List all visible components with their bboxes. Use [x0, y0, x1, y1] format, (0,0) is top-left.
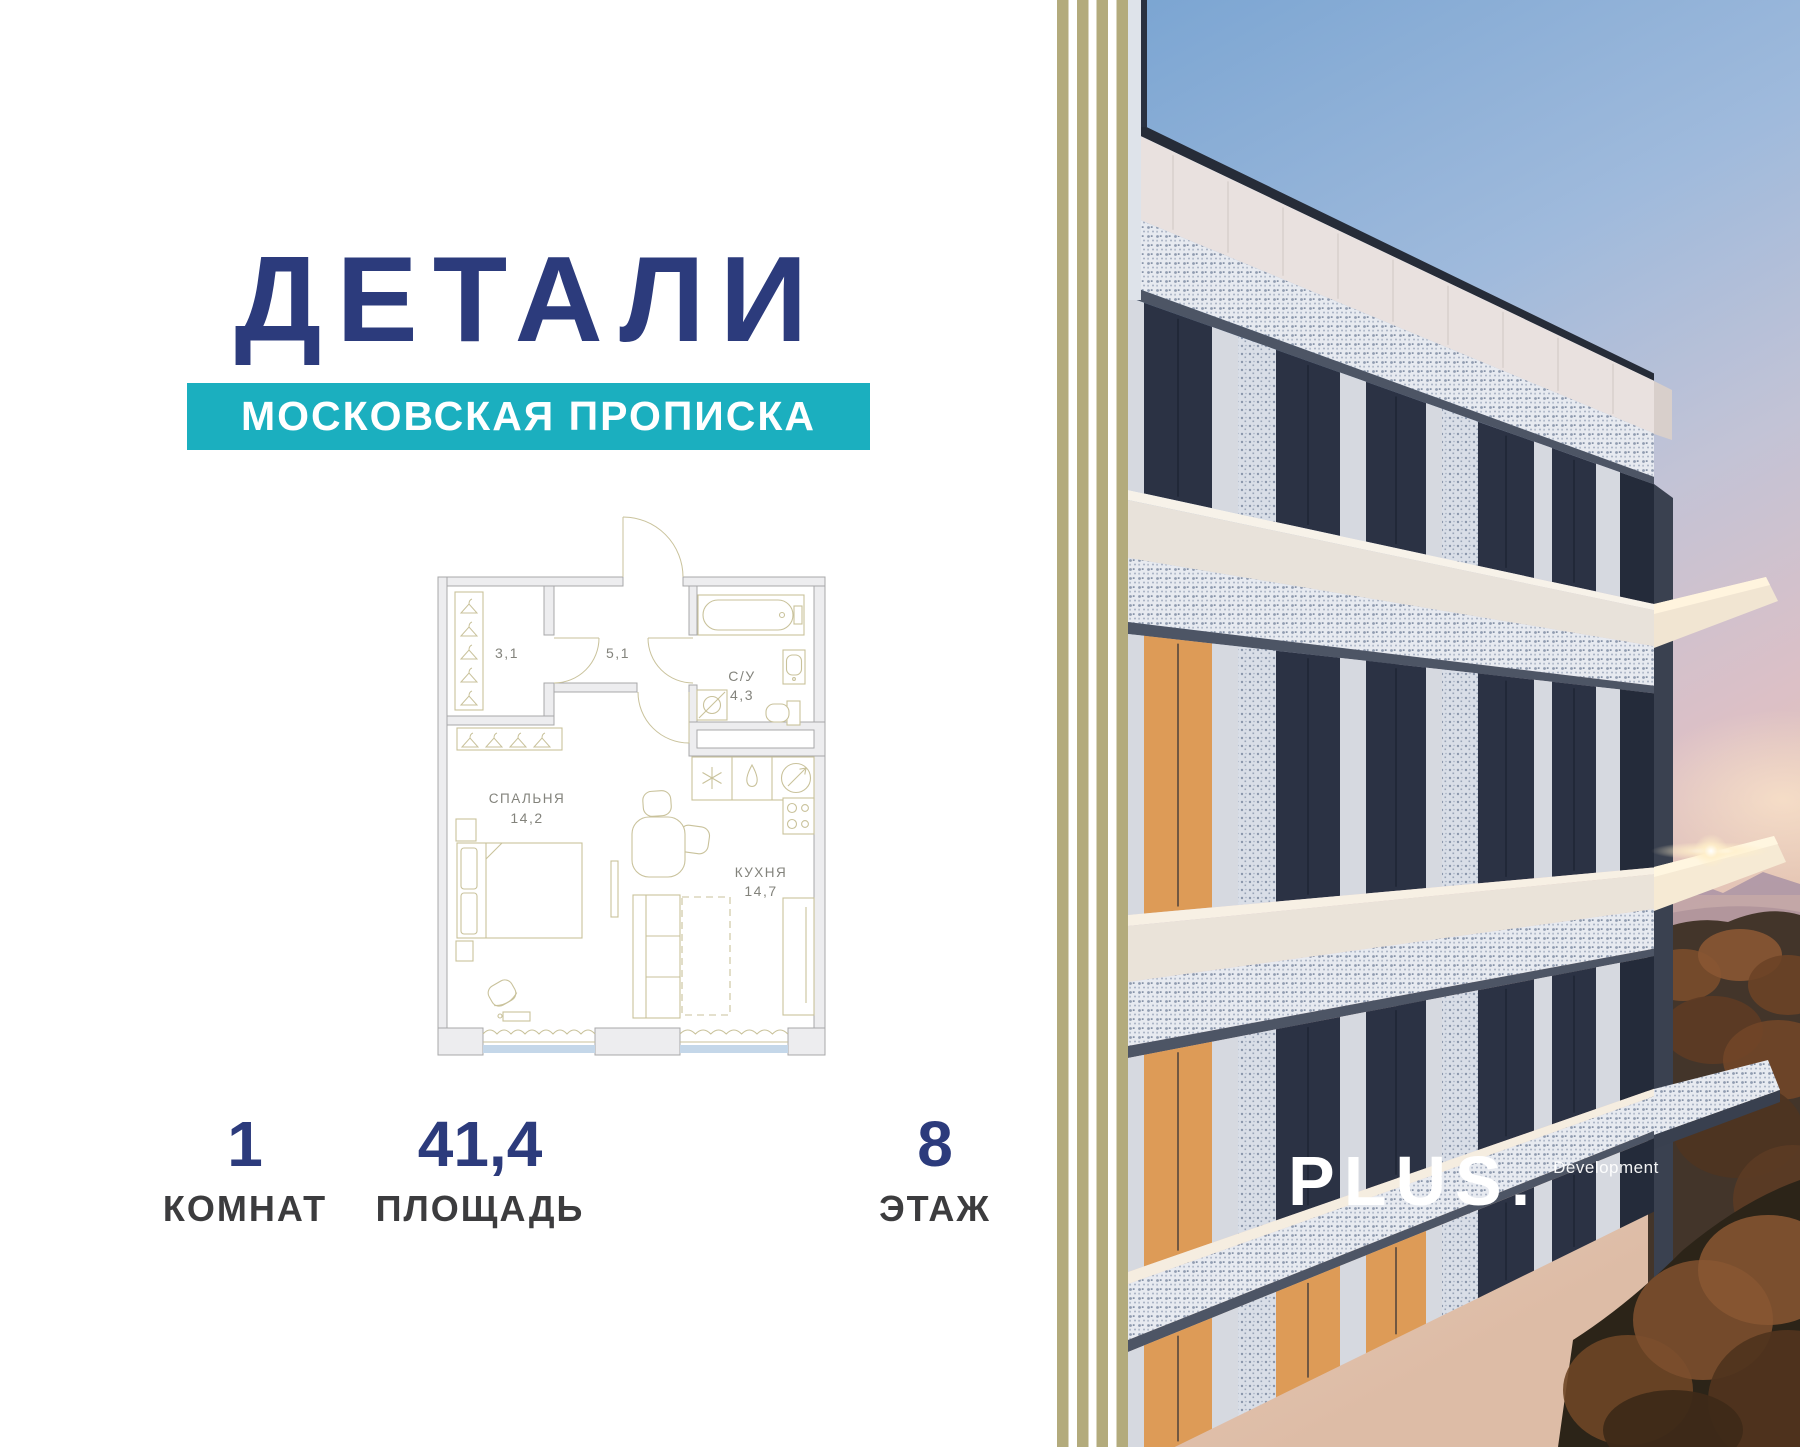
- glazing-right: [680, 1045, 788, 1053]
- planned-furniture-dashed: [682, 897, 730, 1015]
- room-area-bathroom: 4,3: [730, 687, 754, 703]
- brand-logo: ДЕТАЛИ: [0, 238, 1057, 360]
- banner: МОСКОВСКАЯ ПРОПИСКА: [187, 383, 870, 450]
- stat-floor: 8 ЭТАЖ: [879, 1112, 991, 1230]
- glazing-left: [483, 1045, 595, 1053]
- stat-floor-label: ЭТАЖ: [879, 1188, 991, 1230]
- stove-icon: [783, 798, 814, 834]
- stat-rooms-label: КОМНАТ: [163, 1188, 327, 1230]
- room-label-kitchen: КУХНЯ: [735, 865, 788, 880]
- developer-logo: PLUS. Development: [1288, 1146, 1659, 1216]
- room-area-kitchen: 14,7: [744, 883, 777, 899]
- door-arcs: [554, 517, 693, 743]
- building-photo: PLUS. Development: [1128, 0, 1800, 1447]
- stat-rooms-value: 1: [163, 1112, 327, 1176]
- kitchen-table: [632, 790, 711, 877]
- stat-rooms: 1 КОМНАТ: [163, 1112, 327, 1230]
- ad-canvas: ДЕТАЛИ МОСКОВСКАЯ ПРОПИСКА: [0, 0, 1800, 1447]
- room-label-bathroom: С/У: [728, 668, 755, 684]
- washing-machine-icon: [697, 690, 727, 720]
- divider-stripes: [1057, 0, 1128, 1447]
- kitchen-counter: [783, 898, 814, 1015]
- kitchen-appliances: [692, 757, 814, 800]
- building-photo-svg: [1128, 0, 1800, 1447]
- bathtub-icon: [698, 595, 804, 635]
- stat-floor-value: 8: [879, 1112, 991, 1176]
- room-area-bedroom: 14,2: [510, 810, 543, 826]
- stat-area: 41,4 ПЛОЩАДЬ: [376, 1112, 585, 1230]
- toilet-icon: [766, 701, 800, 725]
- developer-logo-text: PLUS.: [1288, 1146, 1539, 1216]
- shaft: [697, 730, 814, 748]
- banner-text: МОСКОВСКАЯ ПРОПИСКА: [241, 393, 816, 440]
- bathroom-sink-icon: [783, 650, 805, 684]
- radiator: [611, 861, 618, 917]
- stat-area-value: 41,4: [376, 1112, 585, 1176]
- developer-logo-suffix: Development: [1553, 1158, 1659, 1178]
- stat-area-label: ПЛОЩАДЬ: [376, 1188, 585, 1230]
- room-area-wardrobe: 3,1: [495, 645, 519, 661]
- bed-icon: [456, 819, 582, 961]
- wall-shelf: [498, 1012, 530, 1021]
- desk-chair-icon: [485, 977, 519, 1009]
- room-area-hallway: 5,1: [606, 645, 630, 661]
- floor-plan: 3,1 5,1 С/У 4,3 СПАЛЬНЯ 14,2 КУХНЯ 14,7: [430, 495, 830, 1065]
- room-label-bedroom: СПАЛЬНЯ: [489, 791, 565, 806]
- sofa-icon: [633, 895, 680, 1018]
